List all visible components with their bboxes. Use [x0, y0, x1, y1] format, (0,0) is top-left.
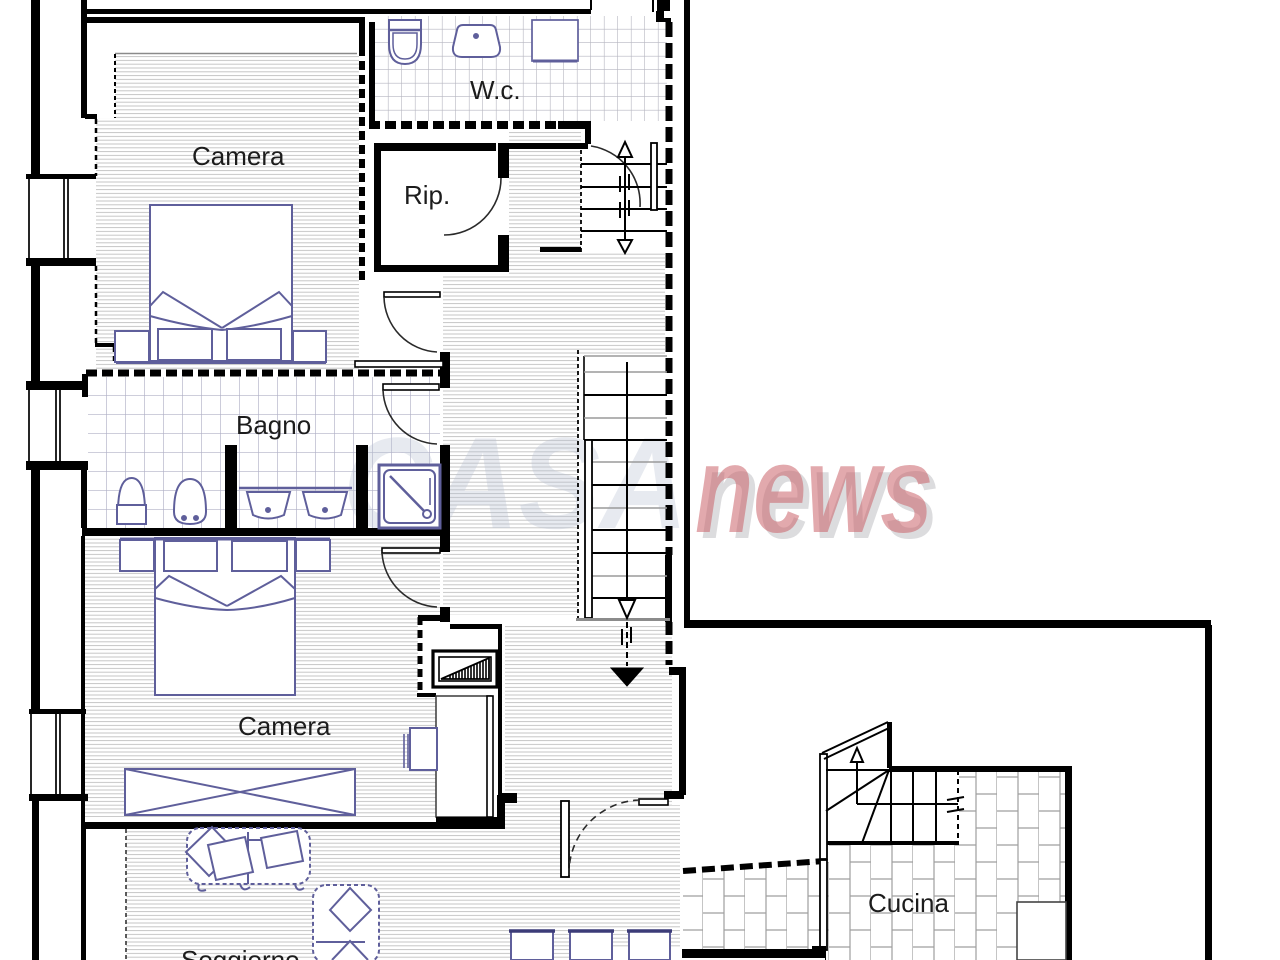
svg-text:Cucina: Cucina — [868, 888, 949, 918]
svg-text:news: news — [695, 421, 933, 559]
svg-text:Soggiorno: Soggiorno — [181, 945, 300, 960]
svg-text:W.c.: W.c. — [470, 75, 521, 105]
svg-text:Camera: Camera — [192, 141, 285, 171]
svg-text:Rip.: Rip. — [404, 180, 450, 210]
svg-text:Bagno: Bagno — [236, 410, 311, 440]
svg-text:Camera: Camera — [238, 711, 331, 741]
